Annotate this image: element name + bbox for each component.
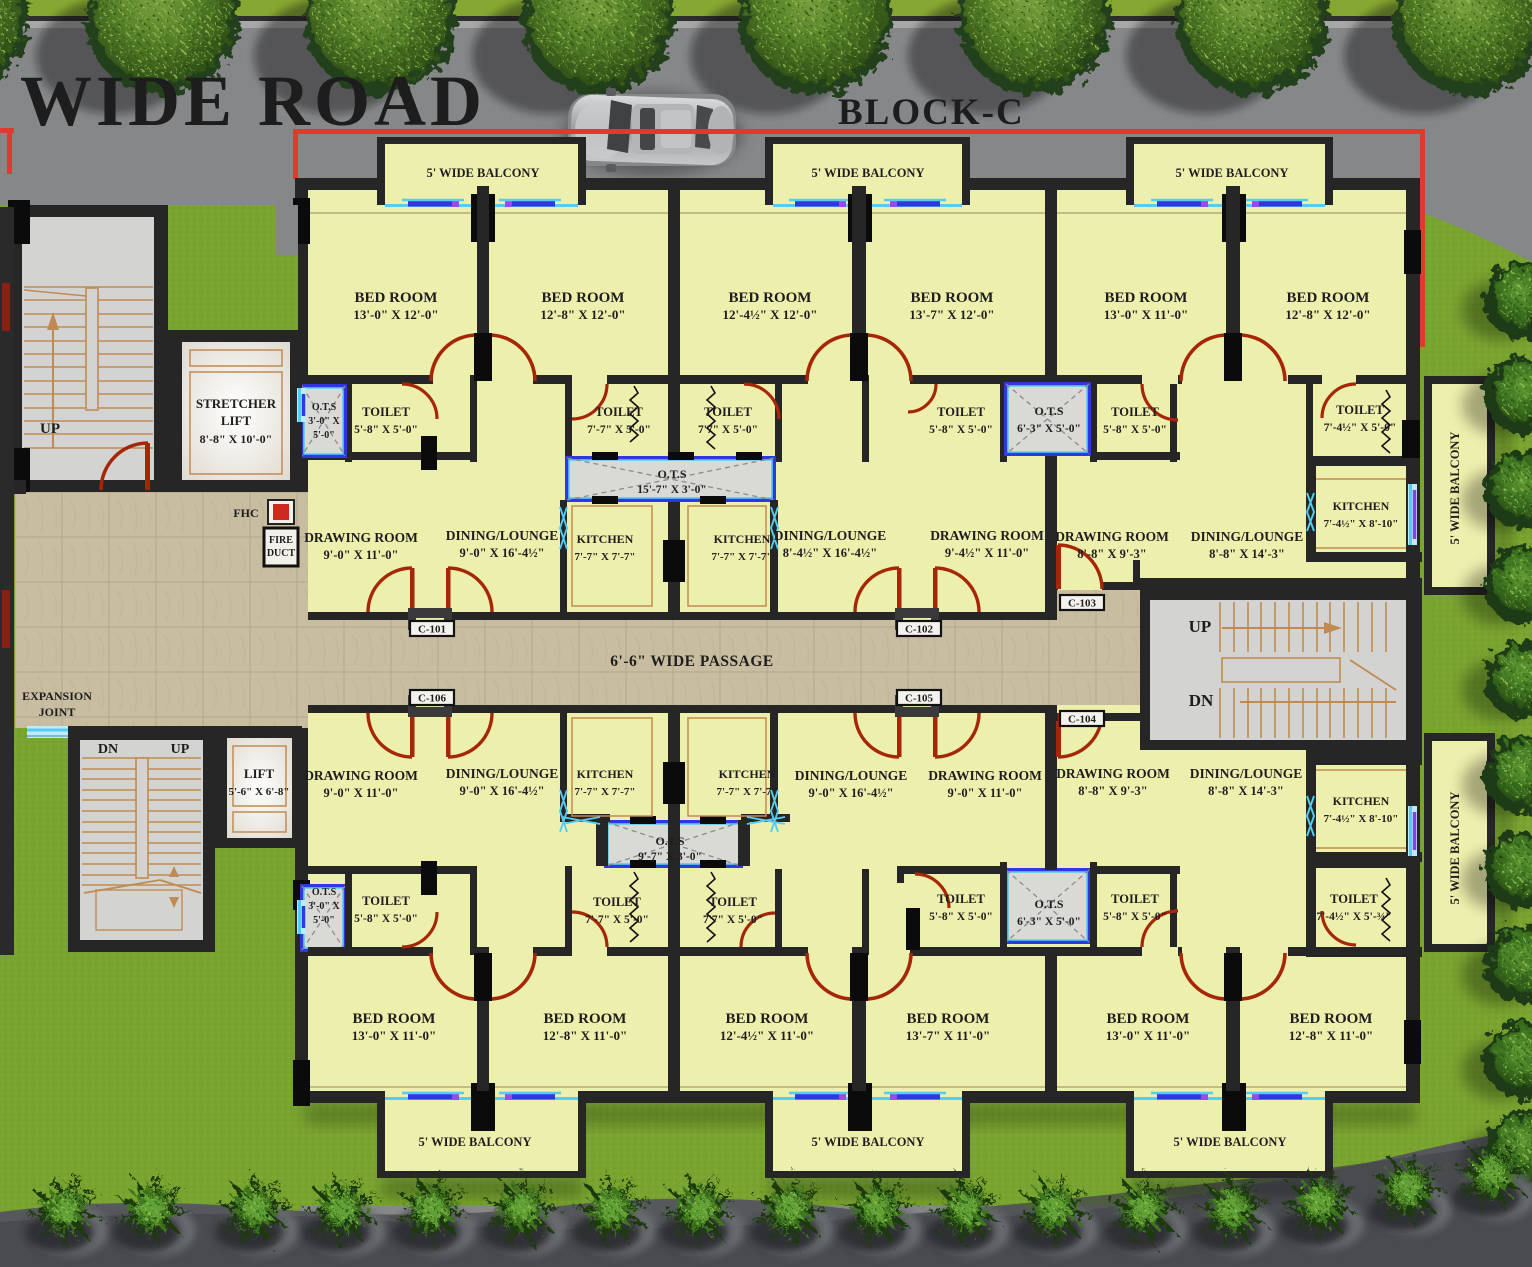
svg-text:BED ROOM: BED ROOM — [1107, 1011, 1190, 1027]
svg-text:KITCHEN: KITCHEN — [577, 767, 634, 781]
svg-text:C-103: C-103 — [1068, 598, 1097, 610]
svg-text:13'-0" X 11'-0": 13'-0" X 11'-0" — [1106, 1028, 1191, 1043]
svg-text:6'-3" X 5'-0": 6'-3" X 5'-0" — [1017, 916, 1081, 928]
svg-text:5' WIDE BALCONY: 5' WIDE BALCONY — [812, 1135, 925, 1149]
svg-text:8'-8" X 9'-3": 8'-8" X 9'-3" — [1078, 784, 1147, 798]
svg-text:5' WIDE BALCONY: 5' WIDE BALCONY — [1176, 166, 1289, 180]
svg-text:BED ROOM: BED ROOM — [544, 1011, 627, 1027]
svg-text:DRAWING ROOM: DRAWING ROOM — [304, 530, 418, 545]
svg-text:DN: DN — [98, 742, 118, 757]
svg-text:8'-8" X 14'-3": 8'-8" X 14'-3" — [1209, 547, 1285, 561]
svg-text:BED ROOM: BED ROOM — [355, 290, 438, 306]
svg-text:5'-8" X 5'-0": 5'-8" X 5'-0" — [1103, 424, 1167, 436]
svg-text:5'-8" X 5'-0": 5'-8" X 5'-0" — [1103, 911, 1167, 923]
svg-text:12'-8" X 12'-0": 12'-8" X 12'-0" — [540, 307, 625, 322]
svg-text:DINING/LOUNGE: DINING/LOUNGE — [795, 768, 908, 783]
svg-text:C-104: C-104 — [1068, 714, 1097, 726]
svg-text:5'-8" X 5'-0": 5'-8" X 5'-0" — [929, 424, 993, 436]
svg-text:BED ROOM: BED ROOM — [726, 1011, 809, 1027]
svg-text:13'-7" X 12'-0": 13'-7" X 12'-0" — [909, 307, 994, 322]
svg-text:3'-0" X: 3'-0" X — [308, 416, 340, 427]
svg-text:7'7" X 5'-0": 7'7" X 5'-0" — [698, 424, 758, 436]
svg-text:KITCHEN: KITCHEN — [577, 532, 634, 546]
svg-text:5' WIDE BALCONY: 5' WIDE BALCONY — [812, 166, 925, 180]
svg-text:5' WIDE BALCONY: 5' WIDE BALCONY — [1448, 432, 1462, 545]
svg-text:5'-0": 5'-0" — [313, 915, 335, 926]
svg-text:5' WIDE BALCONY: 5' WIDE BALCONY — [1174, 1135, 1287, 1149]
svg-text:FIRE: FIRE — [269, 535, 293, 546]
svg-text:7'-7" X 7'-7": 7'-7" X 7'-7" — [716, 786, 777, 798]
svg-text:KITCHEN: KITCHEN — [1333, 499, 1390, 513]
svg-text:DRAWING ROOM: DRAWING ROOM — [304, 768, 418, 783]
svg-text:BED ROOM: BED ROOM — [1105, 290, 1188, 306]
svg-text:DN: DN — [1189, 691, 1214, 710]
svg-text:O.T.S: O.T.S — [312, 887, 337, 898]
svg-text:BLOCK-C: BLOCK-C — [838, 92, 1025, 133]
svg-text:FHC: FHC — [233, 506, 258, 520]
svg-text:8'-8" X 14'-3": 8'-8" X 14'-3" — [1208, 784, 1284, 798]
svg-text:DINING/LOUNGE: DINING/LOUNGE — [446, 766, 559, 781]
svg-text:DUCT: DUCT — [267, 548, 296, 559]
svg-text:TOILET: TOILET — [937, 892, 985, 906]
svg-text:UP: UP — [171, 742, 190, 757]
svg-text:13'-0" X 11'-0": 13'-0" X 11'-0" — [352, 1028, 437, 1043]
svg-text:DRAWING ROOM: DRAWING ROOM — [928, 768, 1042, 783]
svg-text:UP: UP — [1189, 617, 1212, 636]
svg-text:9'-4½" X 11'-0": 9'-4½" X 11'-0" — [945, 546, 1029, 560]
svg-text:C-105: C-105 — [905, 693, 934, 705]
svg-text:TOILET: TOILET — [1111, 405, 1159, 419]
svg-text:TOILET: TOILET — [593, 895, 641, 909]
svg-text:3'-0" X: 3'-0" X — [308, 901, 340, 912]
svg-text:7'-7" X 7'-7": 7'-7" X 7'-7" — [574, 786, 635, 798]
svg-text:KITCHEN: KITCHEN — [1333, 794, 1390, 808]
svg-text:TOILET: TOILET — [704, 405, 752, 419]
svg-text:DINING/LOUNGE: DINING/LOUNGE — [1191, 529, 1304, 544]
svg-text:9'-0" X 11'-0": 9'-0" X 11'-0" — [324, 548, 399, 562]
svg-text:TOILET: TOILET — [362, 894, 410, 908]
svg-text:15'-7" X 3'-0": 15'-7" X 3'-0" — [637, 484, 707, 496]
svg-text:13'-0" X 12'-0": 13'-0" X 12'-0" — [353, 307, 438, 322]
svg-text:BED ROOM: BED ROOM — [1290, 1011, 1373, 1027]
svg-text:LIFT: LIFT — [221, 413, 252, 428]
svg-text:O.T.S: O.T.S — [312, 402, 337, 413]
svg-text:UP: UP — [40, 421, 60, 437]
svg-text:7'-4½" X 8'-10": 7'-4½" X 8'-10" — [1324, 813, 1399, 825]
svg-text:TOILET: TOILET — [937, 405, 985, 419]
svg-text:8'-8" X 9'-3": 8'-8" X 9'-3" — [1077, 547, 1146, 561]
svg-text:9'-0" X 11'-0": 9'-0" X 11'-0" — [324, 786, 399, 800]
svg-text:DINING/LOUNGE: DINING/LOUNGE — [1190, 766, 1303, 781]
svg-text:C-102: C-102 — [905, 624, 934, 636]
svg-text:TOILET: TOILET — [1111, 892, 1159, 906]
svg-text:7'-7" X 5'-0": 7'-7" X 5'-0" — [585, 914, 649, 926]
svg-text:KITCHEN: KITCHEN — [714, 532, 771, 546]
svg-text:BED ROOM: BED ROOM — [542, 290, 625, 306]
svg-text:6'-3" X 5'-0": 6'-3" X 5'-0" — [1017, 423, 1081, 435]
svg-text:8'-8" X 10'-0": 8'-8" X 10'-0" — [200, 432, 273, 446]
svg-text:JOINT: JOINT — [39, 705, 76, 719]
svg-text:O.T.S: O.T.S — [1034, 897, 1063, 911]
svg-text:STRETCHER: STRETCHER — [196, 396, 277, 411]
svg-text:TOILET: TOILET — [362, 405, 410, 419]
svg-text:O.T.S: O.T.S — [657, 467, 686, 481]
svg-text:12'-4½" X 12'-0": 12'-4½" X 12'-0" — [723, 307, 818, 322]
svg-text:5'-8" X 5'-0": 5'-8" X 5'-0" — [929, 911, 993, 923]
svg-text:DINING/LOUNGE: DINING/LOUNGE — [446, 528, 559, 543]
svg-text:5'-8" X 5'-0": 5'-8" X 5'-0" — [354, 424, 418, 436]
svg-text:C-106: C-106 — [418, 693, 447, 705]
svg-text:7'-4½" X 5'-¾": 7'-4½" X 5'-¾" — [1316, 911, 1391, 923]
svg-text:9'-0" X 11'-0": 9'-0" X 11'-0" — [948, 786, 1023, 800]
svg-text:5'-0": 5'-0" — [313, 430, 335, 441]
svg-text:5'-6" X 6'-8": 5'-6" X 6'-8" — [228, 786, 289, 798]
svg-text:9'-0" X 16'-4½": 9'-0" X 16'-4½" — [459, 784, 544, 798]
svg-text:DRAWING ROOM: DRAWING ROOM — [930, 528, 1044, 543]
svg-text:TOILET: TOILET — [595, 405, 643, 419]
svg-text:13'-7" X 11'-0": 13'-7" X 11'-0" — [906, 1028, 991, 1043]
svg-text:6'-6" WIDE PASSAGE: 6'-6" WIDE PASSAGE — [610, 653, 773, 670]
svg-text:EXPANSION: EXPANSION — [22, 689, 92, 703]
svg-text:BED ROOM: BED ROOM — [353, 1011, 436, 1027]
svg-text:5'-8" X 5'-0": 5'-8" X 5'-0" — [354, 913, 418, 925]
svg-text:O.T.S: O.T.S — [1034, 404, 1063, 418]
svg-text:C-101: C-101 — [418, 624, 446, 636]
svg-text:9'-0" X 16'-4½": 9'-0" X 16'-4½" — [459, 546, 544, 560]
svg-text:BED ROOM: BED ROOM — [911, 290, 994, 306]
svg-text:12'-4½" X 11'-0": 12'-4½" X 11'-0" — [720, 1028, 814, 1043]
svg-text:TOILET: TOILET — [1336, 403, 1384, 417]
svg-text:7'-7" X 5'-0": 7'-7" X 5'-0" — [587, 424, 651, 436]
svg-text:7'-7" X 7'-7": 7'-7" X 7'-7" — [574, 551, 635, 563]
svg-text:9'-7" X 3'-0": 9'-7" X 3'-0" — [638, 851, 702, 863]
svg-text:13'-0" X 11'-0": 13'-0" X 11'-0" — [1104, 307, 1189, 322]
svg-text:LIFT: LIFT — [244, 766, 275, 781]
svg-text:9'-0" X 16'-4½": 9'-0" X 16'-4½" — [808, 786, 893, 800]
svg-text:7'-7" X 7'-7": 7'-7" X 7'-7" — [711, 551, 772, 563]
svg-text:BED ROOM: BED ROOM — [729, 290, 812, 306]
svg-text:12'-8" X 12'-0": 12'-8" X 12'-0" — [1285, 307, 1370, 322]
svg-text:DRAWING ROOM: DRAWING ROOM — [1055, 529, 1169, 544]
svg-text:7'-4½" X 5'-0": 7'-4½" X 5'-0" — [1324, 422, 1397, 434]
svg-text:O.T.S: O.T.S — [655, 834, 684, 848]
svg-text:TOILET: TOILET — [1330, 892, 1378, 906]
svg-text:7'-4½" X 8'-10": 7'-4½" X 8'-10" — [1324, 518, 1399, 530]
svg-text:8'-4½" X 16'-4½": 8'-4½" X 16'-4½" — [783, 546, 877, 560]
svg-text:5' WIDE BALCONY: 5' WIDE BALCONY — [419, 1135, 532, 1149]
svg-text:DRAWING ROOM: DRAWING ROOM — [1056, 766, 1170, 781]
svg-text:KITCHEN: KITCHEN — [719, 767, 776, 781]
svg-text:5' WIDE BALCONY: 5' WIDE BALCONY — [1448, 792, 1462, 905]
svg-text:BED ROOM: BED ROOM — [1287, 290, 1370, 306]
svg-text:7'7" X 5'-0": 7'7" X 5'-0" — [703, 914, 763, 926]
svg-text:5' WIDE BALCONY: 5' WIDE BALCONY — [427, 166, 540, 180]
svg-text:TOILET: TOILET — [709, 895, 757, 909]
svg-text:12'-8" X 11'-0": 12'-8" X 11'-0" — [543, 1028, 628, 1043]
svg-text:12'-8" X 11'-0": 12'-8" X 11'-0" — [1289, 1028, 1374, 1043]
svg-text:BED ROOM: BED ROOM — [907, 1011, 990, 1027]
svg-text:DINING/LOUNGE: DINING/LOUNGE — [774, 528, 887, 543]
